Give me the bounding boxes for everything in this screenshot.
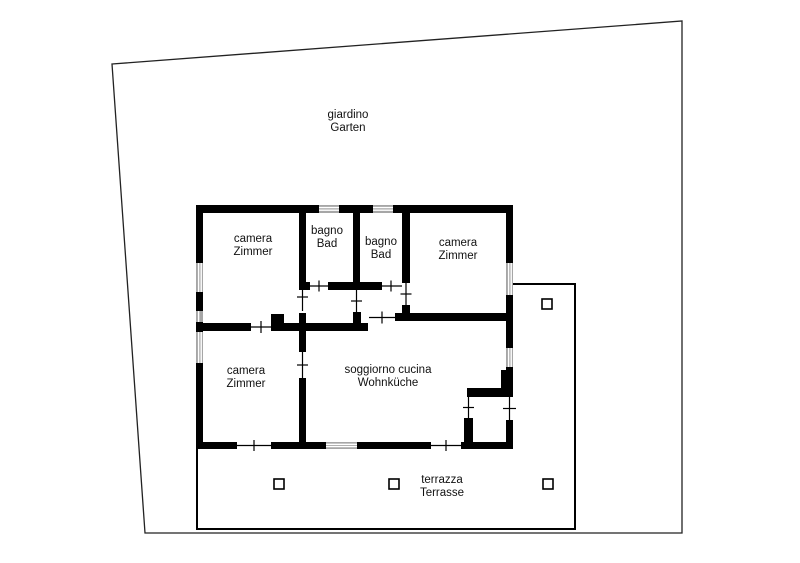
bath-right-label-de: Bad: [371, 249, 391, 261]
floor-plan: giardino Garten camera Zimmer bagno Bad …: [0, 0, 800, 563]
bedroom-top-left-label-de: Zimmer: [234, 246, 273, 258]
window-right-2: [506, 348, 513, 367]
terrace-pillar: [389, 479, 399, 489]
terrace-label-it: terrazza: [421, 474, 463, 486]
bedroom-top-right-label-de: Zimmer: [439, 250, 478, 262]
floor-plan-canvas: giardino Garten camera Zimmer bagno Bad …: [0, 0, 800, 563]
window-right-1: [506, 263, 513, 295]
window-left-2: [196, 311, 203, 363]
living-kitchen-label-it: soggiorno cucina: [345, 364, 433, 376]
window-bottom: [326, 442, 357, 449]
bath-left-label-it: bagno: [311, 225, 343, 237]
terrace-pillar: [542, 299, 552, 309]
bedroom-top-left-label-it: camera: [234, 233, 273, 245]
bath-left-label-de: Bad: [317, 238, 337, 250]
bedroom-top-right-label-it: camera: [439, 237, 478, 249]
garden-label-it: giardino: [328, 109, 369, 121]
bedroom-bottom-left-label-de: Zimmer: [227, 378, 266, 390]
terrace-pillar: [274, 479, 284, 489]
window-top-2: [373, 205, 393, 213]
bath-right-label-it: bagno: [365, 236, 397, 248]
terrace-label-de: Terrasse: [420, 487, 464, 499]
terrace-pillar: [543, 479, 553, 489]
garden-label-de: Garten: [330, 122, 365, 134]
window-top-1: [319, 205, 339, 213]
window-left-1: [196, 263, 203, 292]
living-kitchen-label-de: Wohnküche: [358, 377, 419, 389]
bedroom-bottom-left-label-it: camera: [227, 365, 266, 377]
